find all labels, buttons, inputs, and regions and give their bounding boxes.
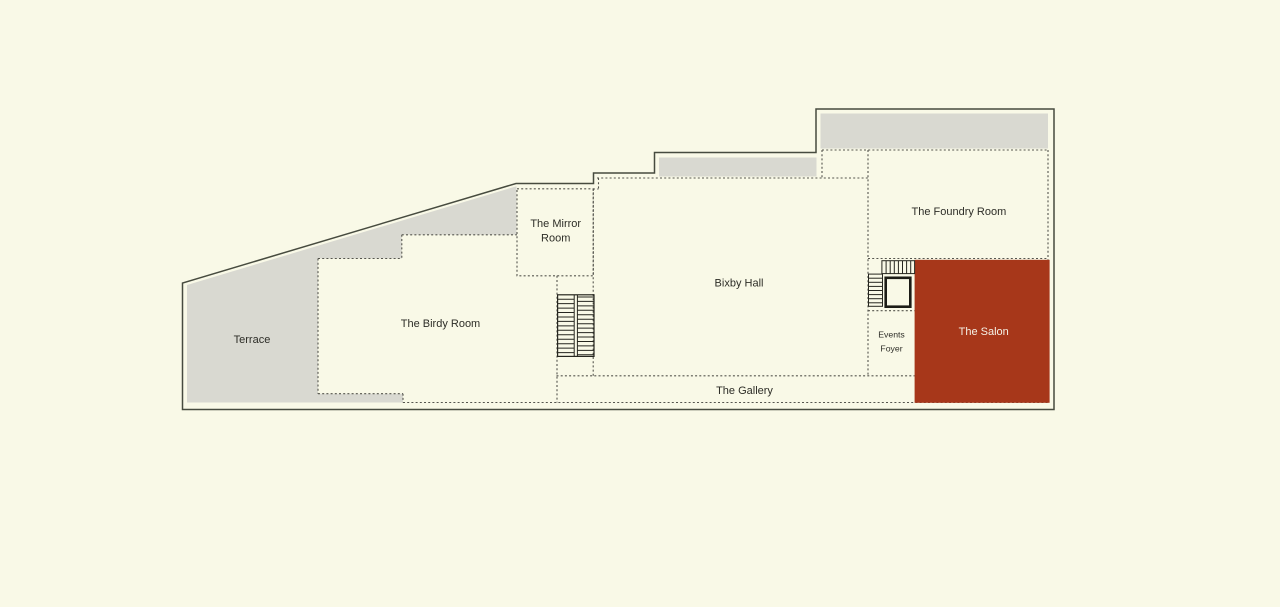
svg-text:The Mirror: The Mirror bbox=[530, 218, 581, 230]
svg-text:Room: Room bbox=[541, 233, 570, 245]
svg-text:Bixby Hall: Bixby Hall bbox=[715, 278, 764, 290]
svg-text:The Birdy Room: The Birdy Room bbox=[401, 318, 480, 330]
svg-text:The Gallery: The Gallery bbox=[716, 385, 773, 397]
svg-text:Terrace: Terrace bbox=[234, 334, 271, 346]
svg-text:The Foundry Room: The Foundry Room bbox=[912, 206, 1007, 218]
svg-text:Foyer: Foyer bbox=[880, 344, 902, 354]
svg-text:Events: Events bbox=[878, 330, 905, 340]
svg-text:The Salon: The Salon bbox=[959, 326, 1009, 338]
